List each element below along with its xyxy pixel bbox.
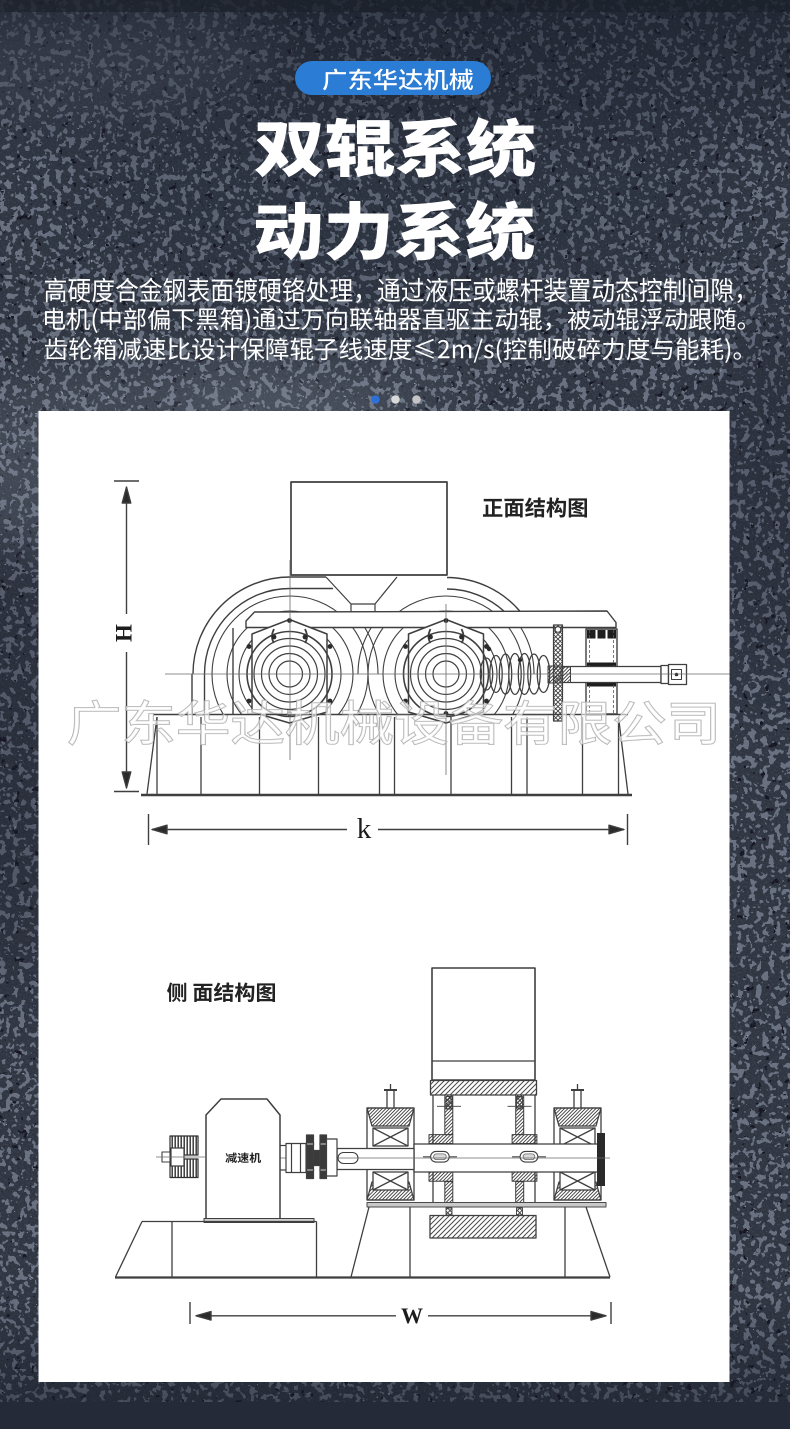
svg-text:k: k <box>357 813 372 845</box>
svg-text:H: H <box>111 624 136 642</box>
svg-text:W: W <box>401 1303 423 1328</box>
